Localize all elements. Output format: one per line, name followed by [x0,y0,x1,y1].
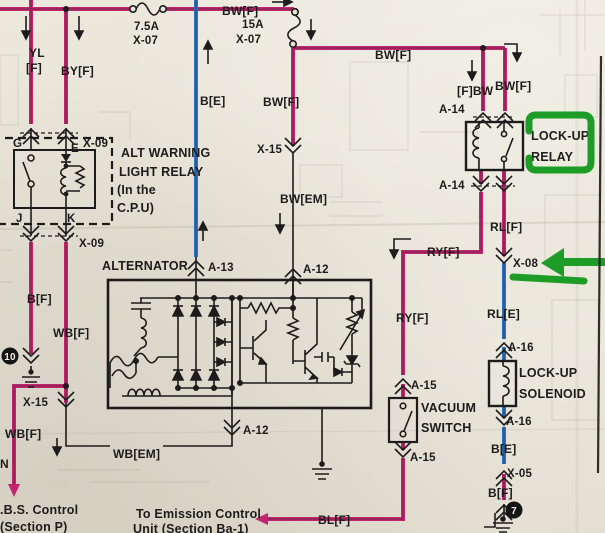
wiring-diagram-page: 10 7 BW[F] 7.5A X-07 15A X-07 BW[F] BW[F… [0,0,605,533]
label-terminal-g: G [13,138,22,150]
ground-symbol-alternator [312,461,332,479]
label-n-fragment: N [0,457,9,471]
label-bw-em: BW[EM] [280,192,327,206]
label-fuse1-connector: X-07 [133,35,158,47]
label-lockup-relay-1: LOCK-UP [531,129,589,143]
label-alt-warning-relay-1: ALT WARNING [121,146,210,160]
label-b-e-top: B[E] [200,94,225,108]
vacuum-switch [389,398,417,442]
label-b-f-bottom: B[F] [488,486,513,500]
label-emission-destination-2: Unit (Section Ba-1) [133,522,249,533]
label-a12-top: A-12 [303,264,329,276]
label-a16-bottom: A-16 [506,416,532,428]
label-fuse2-rating: 15A [242,19,264,31]
label-wb-f-lower: WB[F] [5,427,41,441]
label-terminal-j: J [16,213,23,225]
label-bw-f-right: BW[F] [495,79,531,93]
label-alt-warning-relay-4: C.P.U) [117,201,154,215]
label-lockup-solenoid-2: SOLENOID [519,387,586,401]
label-x09-bottom: X-09 [79,238,104,250]
page-edge-line [598,56,601,473]
label-x08: X-08 [513,258,538,270]
alt-warning-light-relay [0,138,112,224]
label-vacuum-switch-2: SWITCH [421,421,472,435]
label-a13: A-13 [208,262,234,274]
label-ry-f-upper: RY[F] [427,245,460,259]
label-abs-destination-2: (Section P) [0,520,67,533]
label-yl: YL [29,46,45,60]
label-a15-bottom: A-15 [410,452,436,464]
label-wb-em: WB[EM] [113,447,160,461]
label-a16-top: A-16 [508,342,534,354]
label-x09-top: X-09 [83,138,108,150]
alternator-internal-circuit [110,280,364,408]
label-bw-f-vert: BW[F] [263,95,299,109]
label-wb-f-upper: WB[F] [53,326,89,340]
wiring-diagram: 10 7 BW[F] 7.5A X-07 15A X-07 BW[F] BW[F… [0,0,605,533]
label-terminal-k: K [67,213,76,225]
label-a14-top: A-14 [439,104,465,116]
label-yl-f: [F] [26,61,42,75]
label-a14-bottom: A-14 [439,180,465,192]
label-ry-f-lower: RY[F] [396,311,429,325]
label-lockup-relay-2: RELAY [531,150,574,164]
alternator [108,280,371,408]
label-x15-mid: X-15 [257,144,282,156]
label-fbw: [F]BW [457,84,494,98]
x08-arrow-underline [513,277,584,281]
fuse-15a [288,9,300,47]
label-alt-warning-relay-3: (In the [117,183,156,197]
label-b-e-bottom: B[E] [491,442,516,456]
ground-id-left: 10 [4,352,16,363]
label-bl-f: BL[F] [318,513,350,527]
fuse-7-5a [130,3,166,15]
label-rl-f: RL[F] [490,220,522,234]
label-terminal-e: E [71,143,79,155]
label-alt-warning-relay-2: LIGHT RELAY [119,165,204,179]
label-fuse1-rating: 7.5A [134,21,159,33]
ground-id-right: 7 [511,506,517,517]
label-abs-destination-1: .B.S. Control [0,503,78,517]
label-a15-top: A-15 [411,380,437,392]
label-b-f-left: B[F] [27,292,52,306]
label-alternator: ALTERNATOR [102,259,188,273]
label-fuse2-connector: X-07 [236,34,261,46]
lockup-solenoid [489,361,516,406]
label-lockup-solenoid-1: LOCK-UP [519,366,577,380]
label-emission-destination-1: To Emission Control [136,507,261,521]
label-by-f: BY[F] [61,64,94,78]
flow-arrows [22,0,521,527]
label-rl-e: RL[E] [487,307,520,321]
label-a12-bottom: A-12 [243,425,269,437]
abs-wire-arrowhead [8,484,20,497]
label-bw-f-mid: BW[F] [375,48,411,62]
junction-dots [63,6,486,389]
label-x05: X-05 [507,468,532,480]
label-bw-f-topleft: BW[F] [222,4,258,18]
label-x15-left: X-15 [23,397,48,409]
label-vacuum-switch-1: VACUUM [421,401,476,415]
lockup-relay [466,122,523,170]
